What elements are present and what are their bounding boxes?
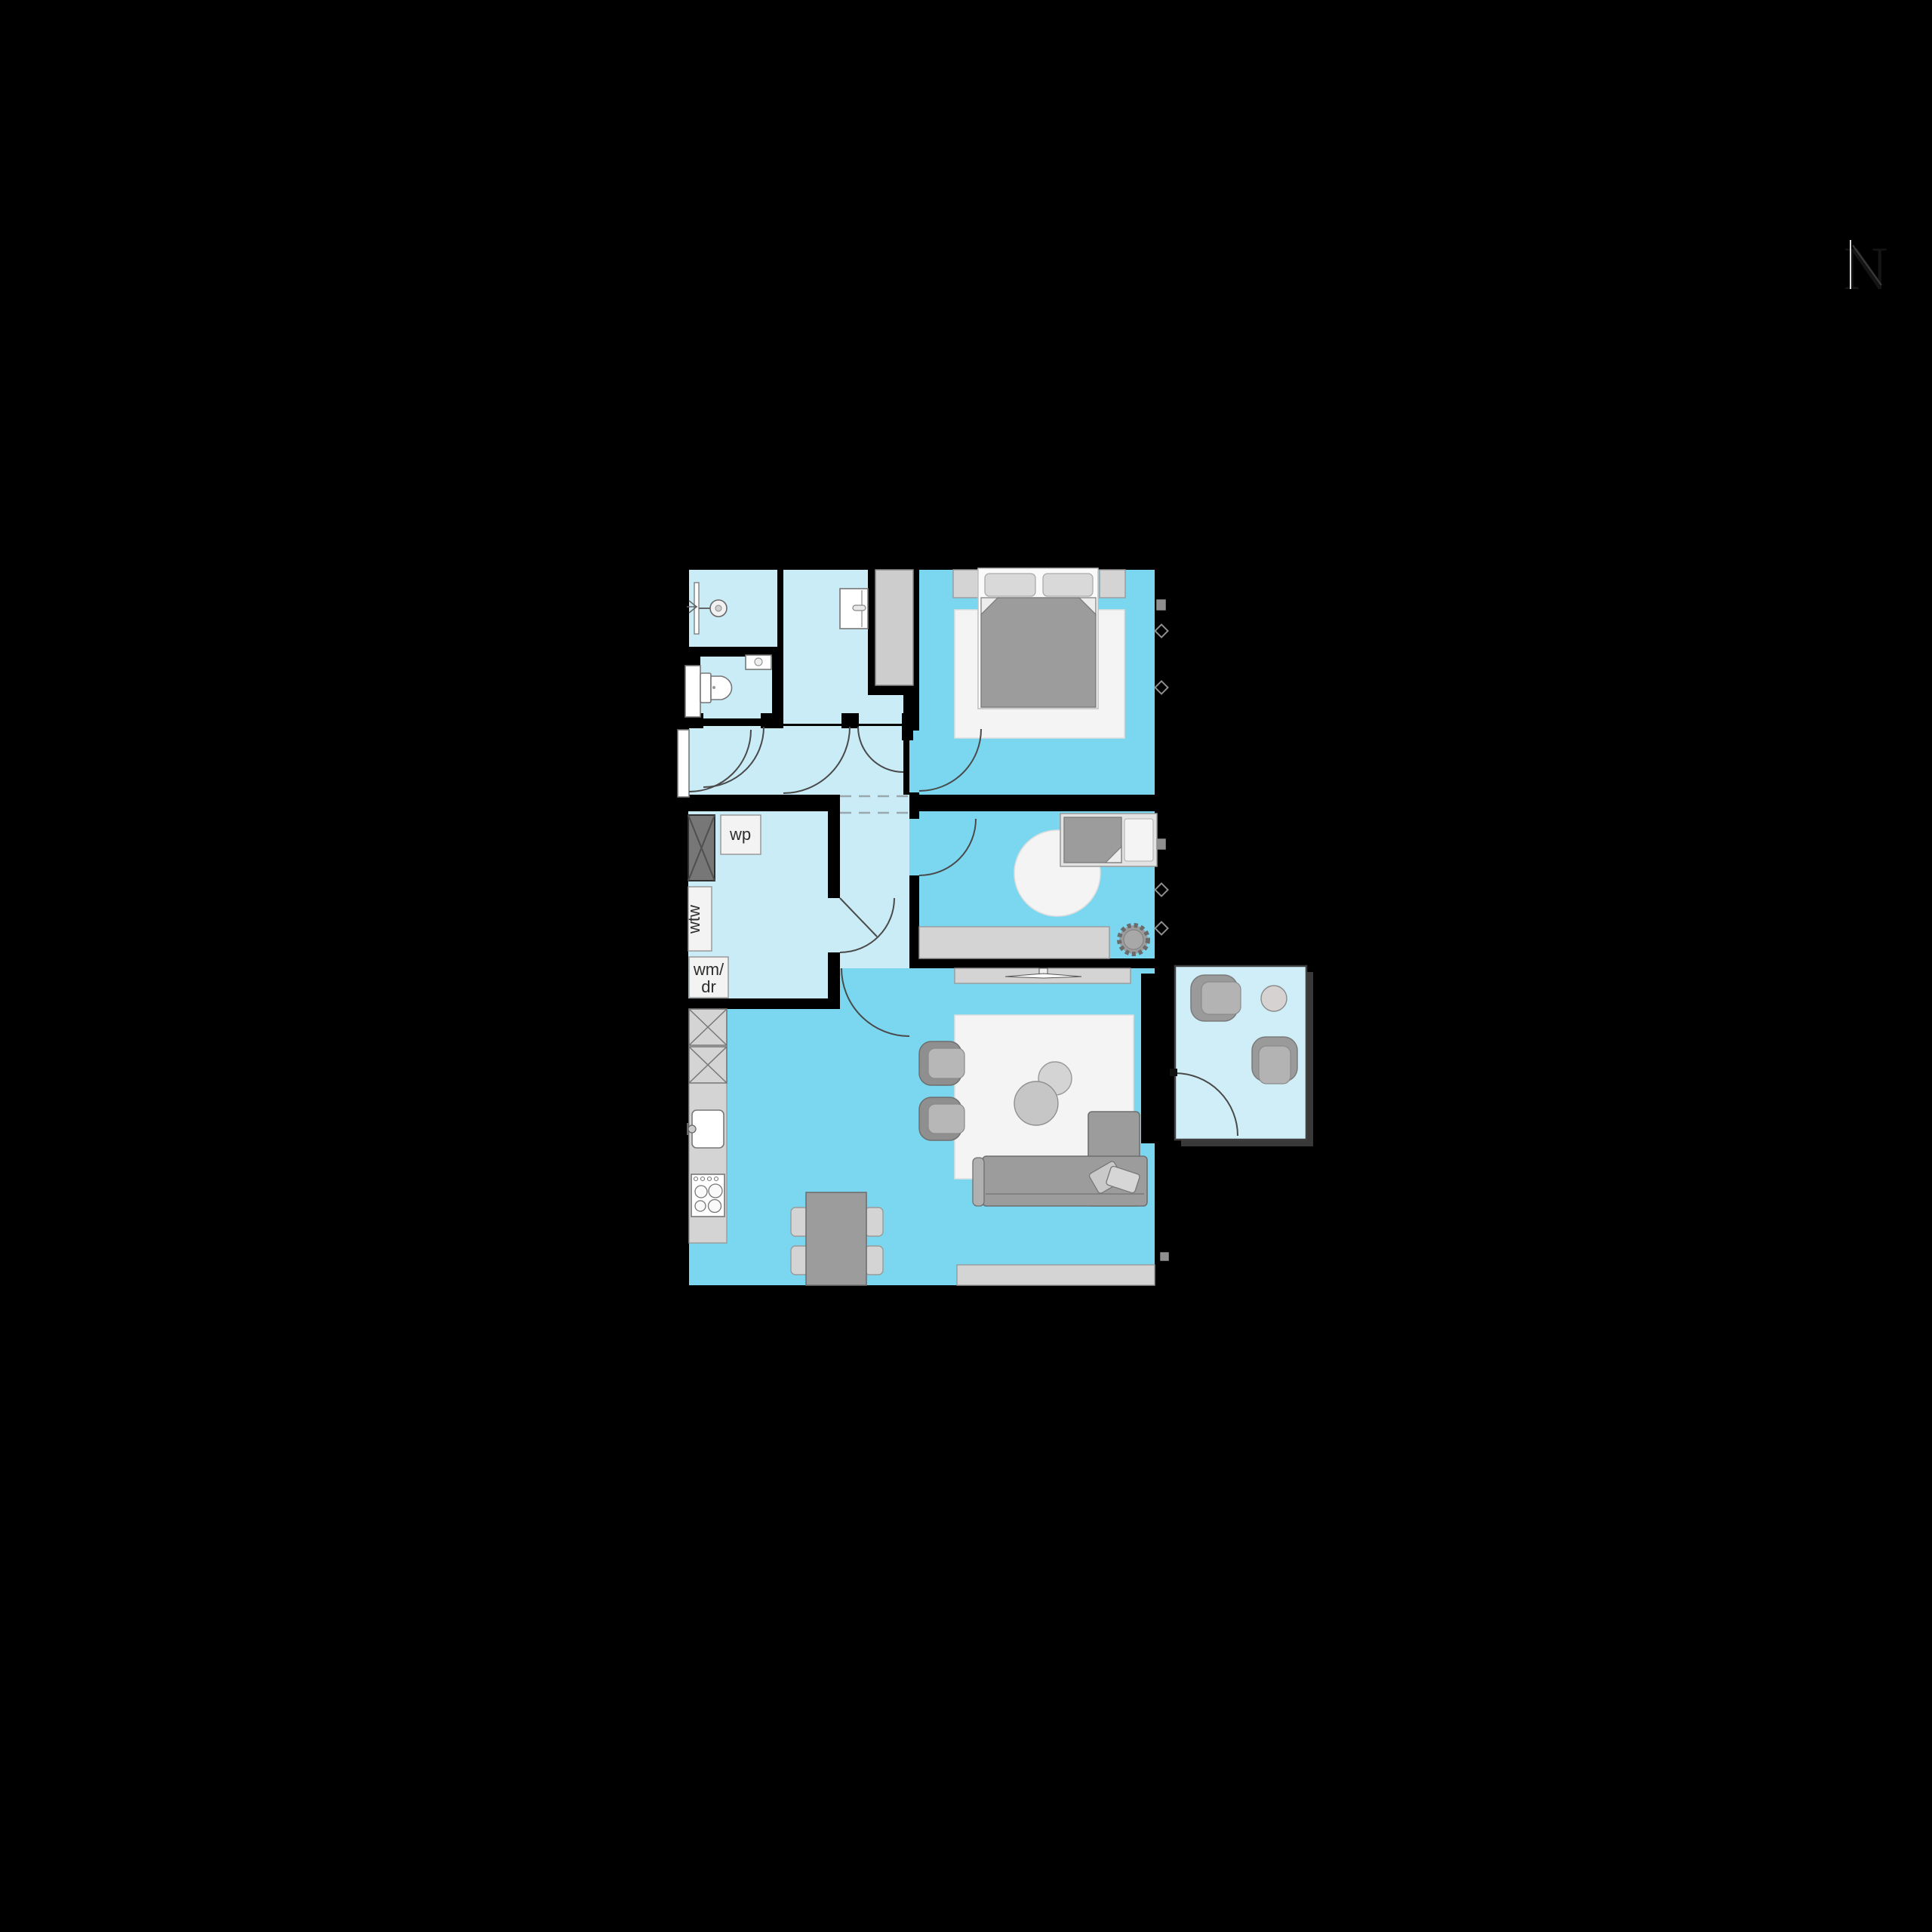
washbasin-icon [746,655,771,669]
heat-pump-label: wp [729,825,751,844]
bedroom-2-door-opening [909,819,919,875]
shower-head-center [715,605,721,611]
utility-door-opening [828,898,840,952]
nightstand [953,570,979,598]
burner [709,1184,722,1198]
duvet [981,598,1096,707]
plant-icon [1119,925,1148,954]
pillow [1043,574,1093,596]
burner [709,1200,721,1213]
armchair-cushion [928,1104,964,1134]
toilet-flush [712,686,715,689]
chair-cushion [1259,1046,1291,1084]
window-tick [1155,681,1168,694]
front-door [678,730,689,797]
window-tick [1157,600,1165,610]
desk-icon [919,927,1109,958]
balcony-wall-chunk [1141,974,1167,1143]
balcony [1170,966,1313,1146]
coffee-table-icon [1014,1081,1058,1125]
pillow [1124,819,1153,861]
duct-shaft [875,570,913,685]
burner [695,1186,707,1198]
plant-pot [1124,930,1143,949]
toilet-tank [700,673,711,703]
balcony-table-icon [1261,986,1287,1011]
balcony-shadow [1306,972,1313,1146]
corridor [840,795,909,968]
balcony-chair-icon [1191,975,1241,1021]
floorplan-drawing: wp wtw wm/ dr [0,0,1932,1932]
nightstand [1100,570,1125,598]
sofa-armrest [973,1158,984,1206]
door-post [1170,1069,1177,1076]
armchair-icon [919,1041,964,1085]
kitchen-counter [688,1009,727,1243]
double-bed-icon [978,568,1098,709]
dining-table-icon [806,1192,866,1285]
hall-alcove [859,695,903,724]
dining-chair [865,1207,883,1236]
window-tick [1155,625,1168,638]
window-ticks [1155,600,1168,1260]
armchair-icon [919,1097,964,1140]
washer-dryer-label-1: wm/ [693,960,724,979]
pillow [985,574,1035,596]
burner [695,1201,706,1211]
heat-recovery-label: wtw [685,905,703,934]
washer-dryer-label-2: dr [701,977,716,996]
bedroom-1-furniture [953,568,1125,738]
window-tick [1155,922,1168,935]
tv-cabinet-icon [955,968,1131,983]
door-handle-icon [853,605,866,611]
faucet-icon [688,1125,696,1133]
window-tick [1155,884,1168,897]
wall-post [761,713,783,728]
sideboard-icon [957,1265,1155,1285]
window-tick [1161,1253,1168,1260]
window-tick [1157,839,1165,849]
closet-door [840,589,868,629]
chair-cushion [1201,982,1241,1014]
armchair-cushion [928,1048,964,1078]
north-indicator: N [1843,234,1887,303]
canvas-background: wp wtw wm/ dr [0,0,1932,1932]
wall-post [902,713,913,740]
single-bed-icon [1060,814,1157,866]
storage-room-lower [783,695,843,724]
dining-chair [865,1246,883,1275]
wall-niche [685,666,700,717]
kitchen-sink-icon [692,1110,724,1148]
balcony-chair-icon [1252,1037,1297,1084]
wall-post [841,713,859,728]
washbasin-bowl [755,658,762,666]
balcony-shadow [1181,1140,1313,1146]
stove-icon [691,1174,724,1217]
